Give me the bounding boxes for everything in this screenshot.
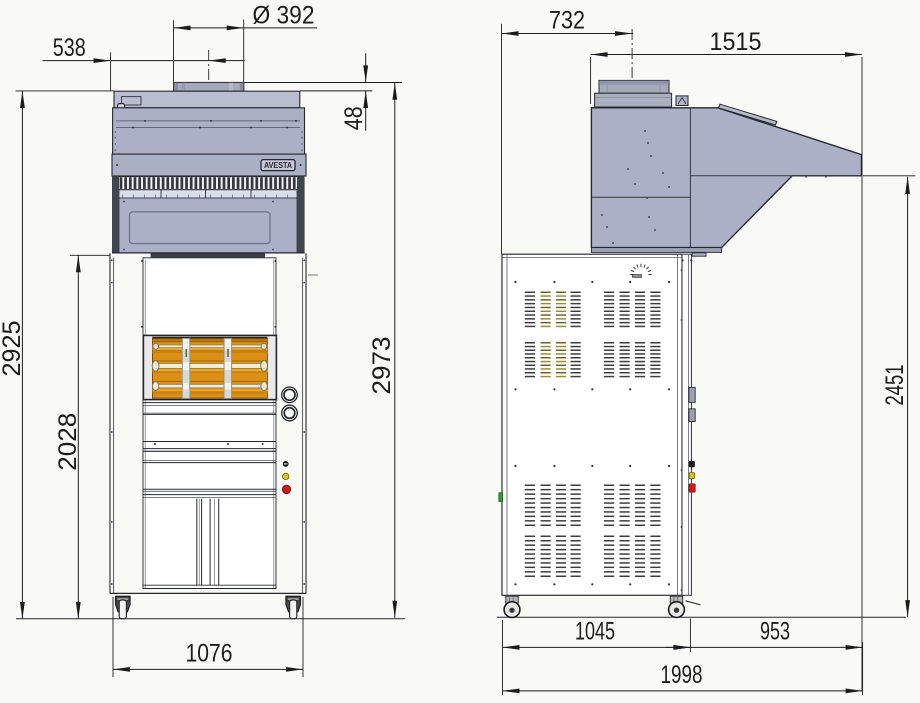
svg-text:1076: 1076 — [186, 640, 233, 668]
svg-text:2925: 2925 — [0, 321, 26, 377]
svg-text:48: 48 — [340, 106, 368, 130]
svg-text:1998: 1998 — [661, 661, 703, 689]
svg-text:AVESTA: AVESTA — [264, 161, 292, 170]
svg-text:953: 953 — [760, 618, 790, 646]
svg-text:732: 732 — [549, 7, 585, 35]
svg-text:2973: 2973 — [368, 337, 396, 395]
svg-text:538: 538 — [53, 34, 86, 62]
svg-text:2028: 2028 — [54, 413, 82, 471]
svg-text:2451: 2451 — [881, 365, 909, 406]
svg-text:Ø 392: Ø 392 — [253, 1, 315, 29]
svg-text:1515: 1515 — [710, 28, 762, 56]
svg-text:1045: 1045 — [575, 618, 615, 646]
